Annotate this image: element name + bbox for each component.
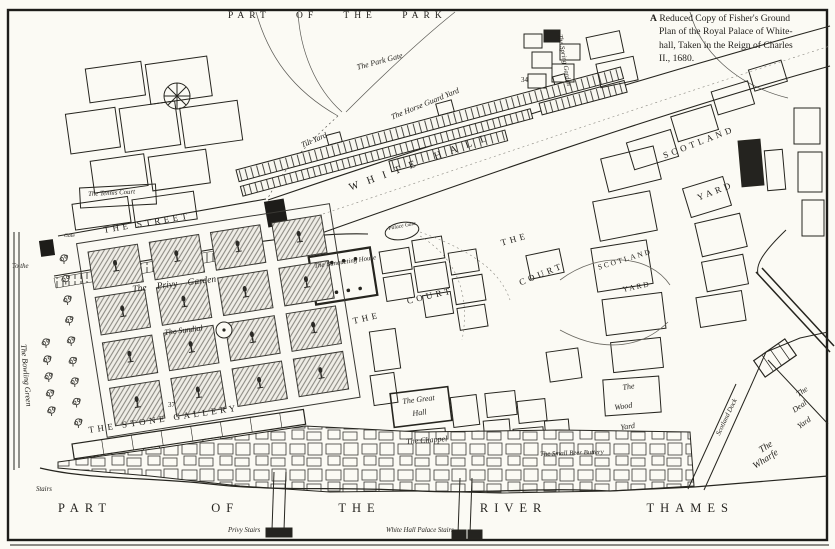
label-part-of-the-park: PART OF THE PARK [228, 12, 447, 22]
scotland-yard-buildings [591, 60, 824, 416]
caption-line-1: A Reduced Copy of Fisher's Ground [650, 12, 828, 25]
map-engraving [0, 0, 835, 549]
label-to-the: To the [12, 264, 29, 271]
label-great-hall-2: Hall [412, 408, 427, 418]
waterfront-lodgings [58, 426, 694, 493]
river-word-part: PART [58, 501, 112, 516]
label-number-37: 37 [168, 402, 175, 409]
label-number-34: 34 [521, 77, 528, 84]
caption-line-4: II., 1680. [650, 52, 828, 65]
cockpit-round-building [164, 83, 190, 109]
label-wood-yard-1: The [622, 382, 635, 392]
label-privy-stairs: Privy Stairs [228, 528, 260, 535]
label-whitehall-palace-stairs: White Hall Palace Stairs [386, 528, 454, 535]
label-gate: Gate [64, 234, 75, 240]
king-street-gate [39, 239, 55, 257]
label-river-thames: PART OF THE RIVER THAMES [58, 501, 734, 516]
river-word-of: OF [211, 501, 239, 516]
caption-line-2: Plan of the Royal Palace of White- [650, 25, 828, 38]
caption-line-3: hall, Taken in the Reign of Charles [650, 39, 828, 52]
river-word-the: THE [338, 501, 380, 516]
map-caption: A Reduced Copy of Fisher's Ground Plan o… [650, 12, 828, 66]
label-stairs: Stairs [36, 487, 52, 494]
river-word-river: RIVER [480, 501, 548, 516]
river-word-thames: THAMES [647, 501, 734, 516]
privy-garden [77, 204, 361, 438]
whitehall-1680-map: PART OF THE PARK A Reduced Copy of Fishe… [0, 0, 835, 549]
tiltyard-ranges [233, 55, 631, 210]
